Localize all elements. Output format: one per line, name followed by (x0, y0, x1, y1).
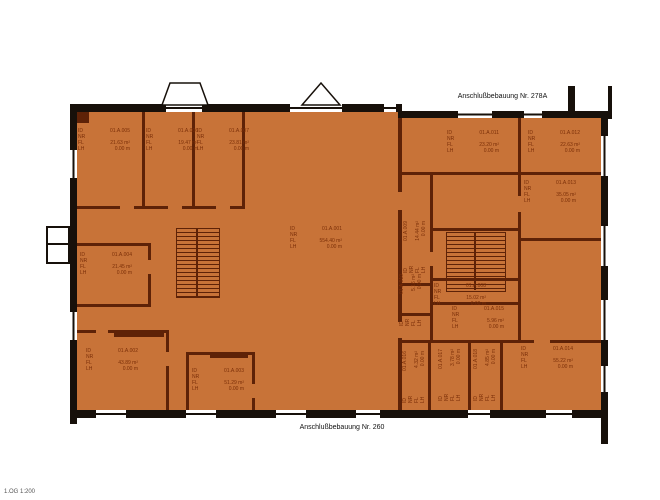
counter-block (210, 354, 248, 358)
entry-porch (46, 226, 70, 264)
wall-segment (430, 228, 518, 231)
door-opening (430, 252, 433, 266)
staircase-center (176, 228, 220, 298)
room-label-01-a-012: IDNRFLLH01.A.012 22.63 m²0.00 m (528, 130, 580, 154)
window (524, 111, 542, 118)
window (96, 410, 126, 418)
room-label-01-a-007: IDNRFLLH01.A.007 23.81 m²0.00 m (197, 128, 249, 152)
door-opening (518, 196, 521, 212)
stair-divider (474, 232, 476, 290)
door-opening (252, 384, 255, 398)
window (458, 111, 492, 118)
wall-segment (192, 108, 195, 208)
annexe-label-bottom: Anschlußbebauung Nr. 260 (272, 424, 412, 431)
room-label-01-a-008: IDNRFLLH01.A.008 15.02 m²0.00 m (434, 283, 486, 307)
door-opening (534, 340, 550, 343)
wall-segment (398, 172, 601, 175)
scale-note: 1.OG 1:200 (4, 489, 35, 495)
room-label-01-a-017: IDNRFLLH01.A.017 3.78 m²0.00 m (438, 349, 462, 401)
party-wall-bottom (601, 418, 608, 444)
wall-segment (428, 340, 431, 414)
wall-segment (518, 111, 521, 341)
window (276, 410, 306, 418)
floor-plan-canvas: IDNRFLLH01.A.005 21.63 m²0.00 m IDNRFLLH… (0, 0, 660, 500)
door-opening (120, 206, 134, 209)
room-label-01-a-015: IDNRFLLH01.A.015 5.96 m²0.00 m (452, 306, 504, 330)
wall-segment (468, 340, 471, 414)
wall-segment (148, 243, 151, 307)
door-opening (96, 330, 108, 333)
exterior-wall-top-right (398, 111, 608, 118)
room-label-01-a-014: IDNRFLLH01.A.014 55.22 m²0.00 m (521, 346, 573, 370)
wall-stub-bottom-left (70, 418, 77, 424)
wall-segment (518, 238, 601, 241)
wall-segment (252, 352, 255, 414)
window (601, 136, 608, 176)
wall-segment (142, 108, 145, 208)
wall-segment (430, 278, 518, 281)
room-label-01-a-002: IDNRFLLH01.A.002 43.89 m²0.00 m (86, 348, 138, 372)
exterior-wall-bottom (70, 410, 608, 418)
door-opening (216, 206, 230, 209)
door-opening (148, 260, 151, 274)
party-wall-top-edge (608, 86, 612, 119)
room-label-01-a-005: IDNRFLLH01.A.005 21.63 m²0.00 m (78, 128, 130, 152)
wall-segment (74, 243, 150, 246)
window (356, 410, 380, 418)
wall-segment (242, 108, 245, 208)
window (70, 312, 77, 340)
top-right-setback (402, 100, 608, 111)
room-label-01-a-003: IDNRFLLH01.A.003 51.29 m²0.00 m (192, 368, 244, 392)
window (468, 410, 490, 418)
door-opening (398, 192, 402, 210)
room-label-01-a-010: IDNRFLLH01.A.010 5.16 m²0.00 m (399, 274, 423, 326)
window (601, 226, 608, 266)
wall-segment (74, 304, 151, 307)
window (601, 300, 608, 340)
door-opening (166, 352, 169, 366)
wall-segment (186, 352, 189, 414)
room-label-01-a-013: IDNRFLLH01.A.013 35.05 m²0.00 m (524, 180, 576, 204)
room-label-01-a-018: IDNRFLLH01.A.018 4.85 m²0.00 m (473, 349, 497, 401)
room-label-01-a-006: IDNRFLLH01.A.006 19.47 m²0.00 m (146, 128, 198, 152)
wall-segment (500, 340, 503, 414)
porch-step-line (46, 243, 70, 245)
wall-segment (166, 330, 169, 414)
window (70, 150, 77, 178)
room-label-01-a-001: IDNRFLLH01.A.001 554.40 m²0.00 m (290, 226, 342, 250)
gable-shapes (150, 80, 410, 106)
window (546, 410, 572, 418)
counter-block (114, 332, 164, 337)
room-label-01-a-009: IDNRFLLH01.A.009 14.44 m²0.00 m (403, 221, 427, 273)
room-label-01-a-011: IDNRFLLH01.A.011 23.20 m²0.00 m (447, 130, 499, 154)
room-label-01-a-016: IDNRFLLH01.A.016 4.32 m²0.00 m (402, 351, 426, 403)
window (186, 410, 216, 418)
stair-divider (196, 228, 198, 296)
room-label-01-a-004: IDNRFLLH01.A.004 21.45 m²0.00 m (80, 252, 132, 276)
window (601, 366, 608, 392)
door-opening (168, 206, 182, 209)
annexe-label-top: Anschlußbebauung Nr. 278A (430, 93, 575, 100)
